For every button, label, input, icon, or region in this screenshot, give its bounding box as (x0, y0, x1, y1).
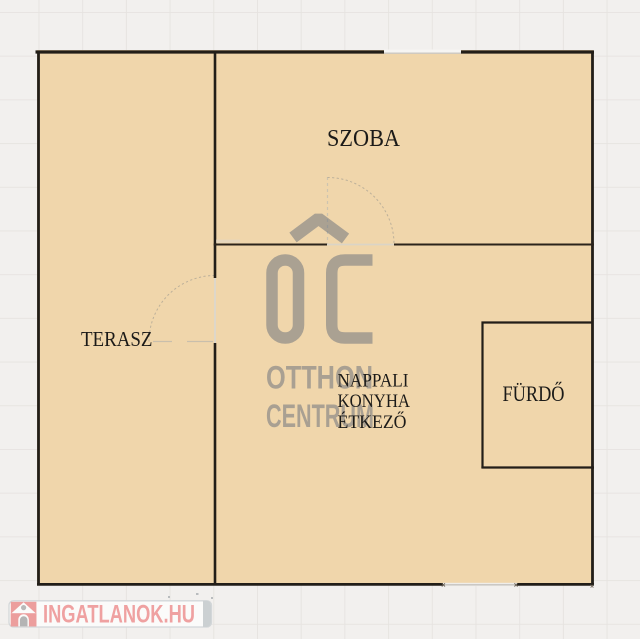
svg-text:SZOBA: SZOBA (327, 126, 401, 152)
svg-text:TERASZ: TERASZ (81, 327, 153, 351)
svg-text:INGATLANOK.HU: INGATLANOK.HU (43, 601, 195, 629)
svg-text:ÉTKEZŐ: ÉTKEZŐ (338, 411, 407, 433)
svg-text:NAPPALI: NAPPALI (338, 371, 409, 392)
svg-text:KONYHA: KONYHA (338, 391, 411, 412)
svg-text:FÜRDŐ: FÜRDŐ (503, 381, 565, 406)
